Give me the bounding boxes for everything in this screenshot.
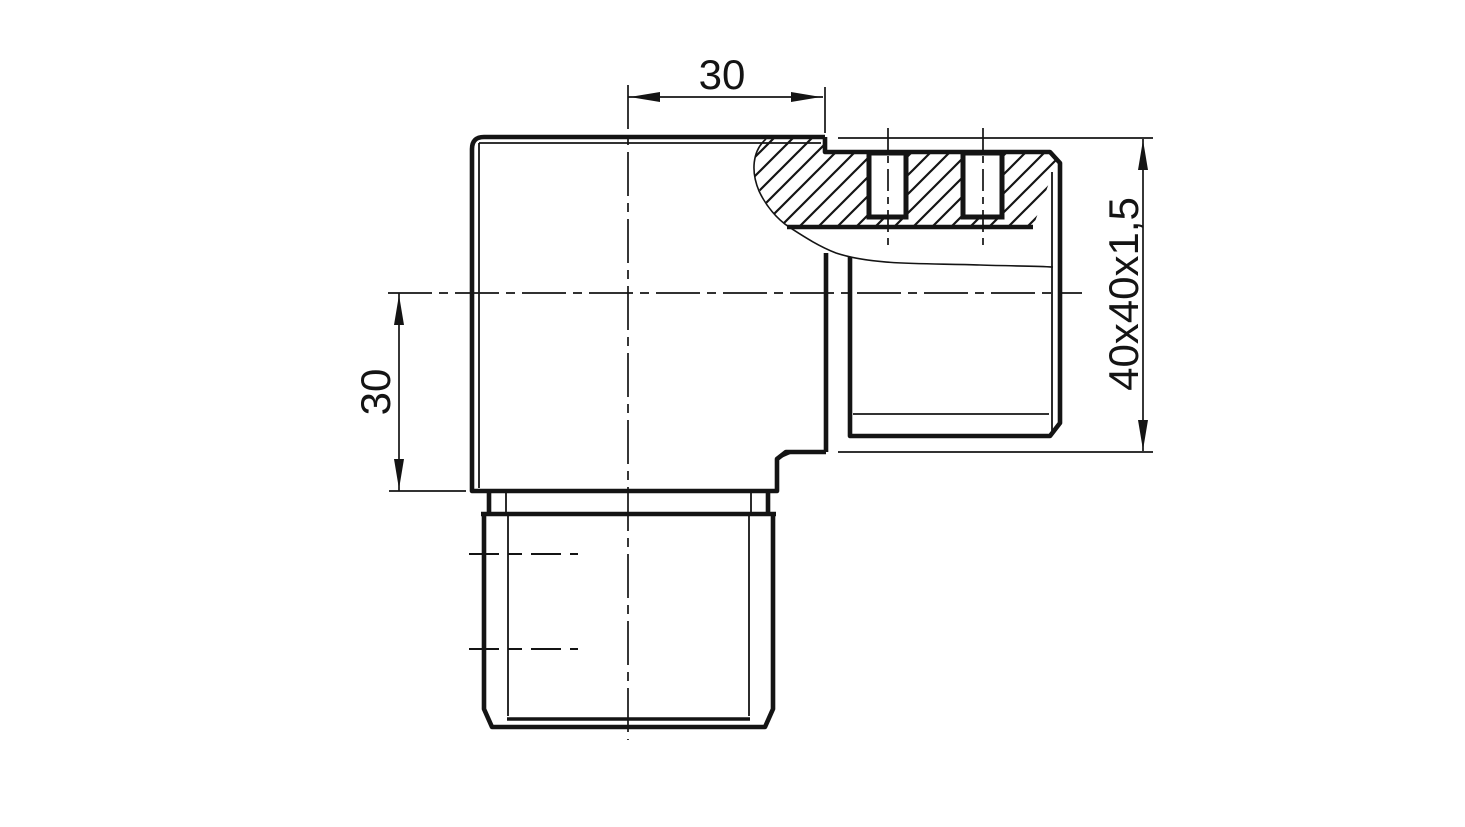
arrowhead-right-top bbox=[1138, 140, 1148, 170]
dimension-text-left: 30 bbox=[352, 369, 399, 416]
arrowhead-top-right bbox=[791, 92, 821, 102]
arrowhead-right-bottom bbox=[1138, 420, 1148, 450]
arrowhead-left-top bbox=[394, 295, 404, 325]
elbow-fitting-drawing: 30 30 40x40x1,5 bbox=[0, 0, 1465, 827]
arrowhead-top-left bbox=[630, 92, 660, 102]
dimension-left bbox=[389, 293, 466, 491]
dimension-text-top: 30 bbox=[699, 51, 746, 98]
technical-drawing-canvas: 30 30 40x40x1,5 bbox=[0, 0, 1465, 827]
arrowhead-left-bottom bbox=[394, 459, 404, 489]
dimension-text-right: 40x40x1,5 bbox=[1100, 197, 1147, 391]
